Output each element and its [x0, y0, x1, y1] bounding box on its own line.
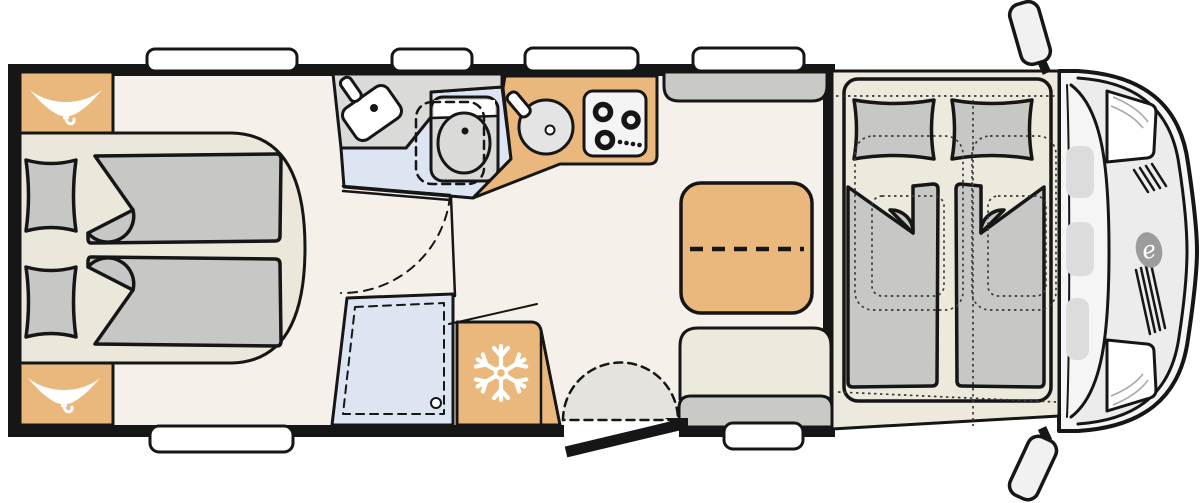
pillow: [26, 267, 76, 337]
rear-bed-bottom: [26, 257, 281, 346]
sink-drain-dot: [546, 126, 555, 135]
window-bump-3: [525, 48, 638, 71]
dinette-bench-rear: [680, 328, 831, 399]
shower: [332, 294, 453, 425]
rear-bed-top: [26, 154, 281, 243]
overcab-area: [832, 71, 1059, 429]
entry-step: [724, 423, 803, 449]
wardrobe-top: [20, 72, 113, 133]
window-bump-1: [147, 49, 297, 71]
stove: [584, 91, 646, 156]
window-bump-2: [392, 49, 472, 71]
pillow: [26, 160, 76, 231]
dinette-bench-front: [664, 72, 827, 101]
window-bump-4: [693, 48, 804, 71]
mirror-bottom: [1006, 428, 1060, 503]
pillow-left: [854, 100, 934, 159]
toilet-seat: [438, 113, 490, 173]
mirror-top: [1007, 0, 1053, 73]
toilet-flush-dot: [462, 128, 469, 135]
cab-front: e: [1059, 71, 1197, 431]
shower-drain-icon: [431, 398, 441, 408]
drain-dot: [370, 104, 378, 112]
floorplan-page: e: [0, 0, 1200, 503]
wardrobe-bottom: [20, 363, 113, 425]
window-bump-bottom: [150, 426, 293, 452]
pillow-right: [952, 100, 1032, 159]
floorplan-svg: e: [0, 0, 1200, 503]
